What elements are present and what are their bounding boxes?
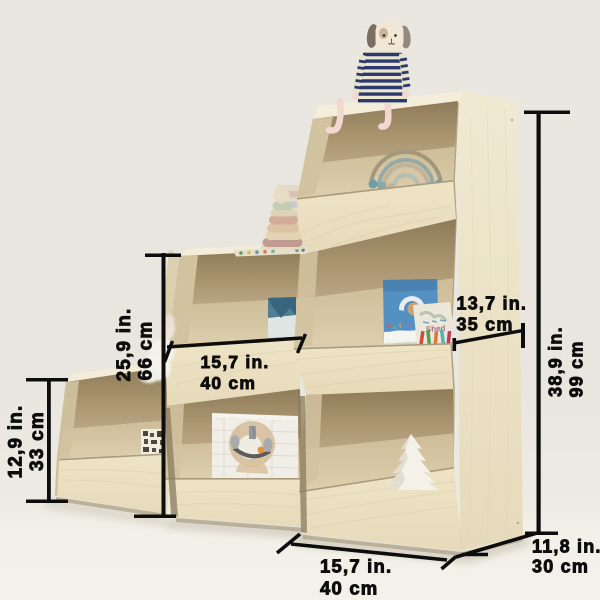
svg-text:99 cm: 99 cm bbox=[567, 340, 587, 397]
svg-text:40 cm: 40 cm bbox=[201, 373, 257, 393]
svg-text:e: e bbox=[393, 325, 397, 332]
svg-text:15,7 in.: 15,7 in. bbox=[201, 352, 270, 372]
svg-text:35 cm: 35 cm bbox=[457, 315, 514, 335]
svg-text:15,7 in.: 15,7 in. bbox=[320, 556, 392, 577]
svg-text:25,9 in.: 25,9 in. bbox=[114, 307, 135, 381]
svg-text:13,7 in.: 13,7 in. bbox=[457, 294, 528, 314]
svg-text:66 cm: 66 cm bbox=[136, 321, 157, 381]
svg-text:40 cm: 40 cm bbox=[320, 578, 378, 599]
svg-text:30 cm: 30 cm bbox=[532, 557, 589, 577]
svg-text:11,8 in.: 11,8 in. bbox=[532, 537, 600, 557]
svg-text:e: e bbox=[404, 325, 408, 332]
svg-text:33 cm: 33 cm bbox=[27, 411, 48, 471]
svg-text:38,9 in.: 38,9 in. bbox=[546, 326, 566, 397]
svg-text:r: r bbox=[409, 323, 412, 330]
svg-text:P: P bbox=[387, 323, 392, 330]
svg-text:12,9 in.: 12,9 in. bbox=[6, 404, 27, 478]
